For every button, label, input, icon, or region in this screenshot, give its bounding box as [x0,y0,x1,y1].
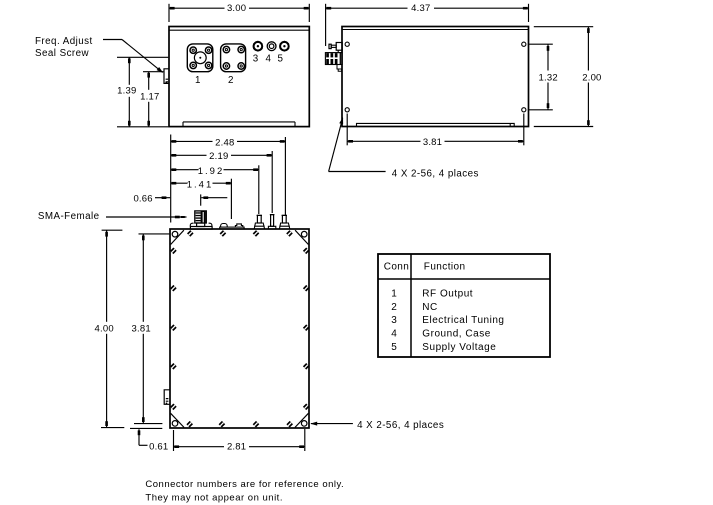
svg-text:RF Output: RF Output [422,289,473,300]
svg-text:1.39: 1.39 [117,86,136,97]
svg-text:2.00: 2.00 [582,73,601,84]
svg-text:2.19: 2.19 [209,151,228,162]
svg-text:2: 2 [391,302,397,313]
svg-text:Ground, Case: Ground, Case [422,329,491,340]
svg-text:0.66: 0.66 [133,194,152,205]
svg-text:Conn: Conn [384,262,410,273]
svg-text:SMA-Female: SMA-Female [38,211,100,222]
svg-text:4 X 2-56, 4 places: 4 X 2-56, 4 places [392,168,479,179]
svg-text:2.81: 2.81 [227,441,246,452]
svg-text:5: 5 [277,54,283,65]
svg-text:Function: Function [424,262,466,273]
svg-text:They may not appear on unit.: They may not appear on unit. [145,492,283,503]
svg-text:1.92: 1.92 [198,166,225,177]
svg-text:4: 4 [265,54,271,65]
svg-text:NC: NC [422,302,437,313]
svg-text:1.32: 1.32 [539,73,558,84]
svg-text:1: 1 [195,75,201,86]
svg-text:2: 2 [228,75,234,86]
svg-text:3.00: 3.00 [227,3,246,14]
svg-text:4 X 2-56, 4 places: 4 X 2-56, 4 places [357,420,444,431]
svg-text:Electrical Tuning: Electrical Tuning [422,315,504,326]
svg-text:5: 5 [391,342,397,353]
svg-text:Freq. Adjust: Freq. Adjust [35,36,93,47]
svg-text:0.61: 0.61 [149,441,168,452]
svg-text:3.81: 3.81 [132,324,151,335]
svg-text:Seal Screw: Seal Screw [35,48,90,59]
svg-text:Supply Voltage: Supply Voltage [422,342,496,353]
svg-text:1.41: 1.41 [187,179,214,190]
svg-text:1.17: 1.17 [140,92,159,103]
svg-text:1: 1 [391,289,397,300]
svg-text:3: 3 [391,315,397,326]
svg-text:3.81: 3.81 [423,137,442,148]
svg-text:4: 4 [391,329,397,340]
svg-text:4.00: 4.00 [95,324,114,335]
svg-text:3: 3 [253,54,259,65]
svg-text:4.37: 4.37 [411,3,430,14]
svg-text:2.48: 2.48 [215,137,234,148]
svg-text:Connector numbers are for refe: Connector numbers are for reference only… [145,479,344,490]
